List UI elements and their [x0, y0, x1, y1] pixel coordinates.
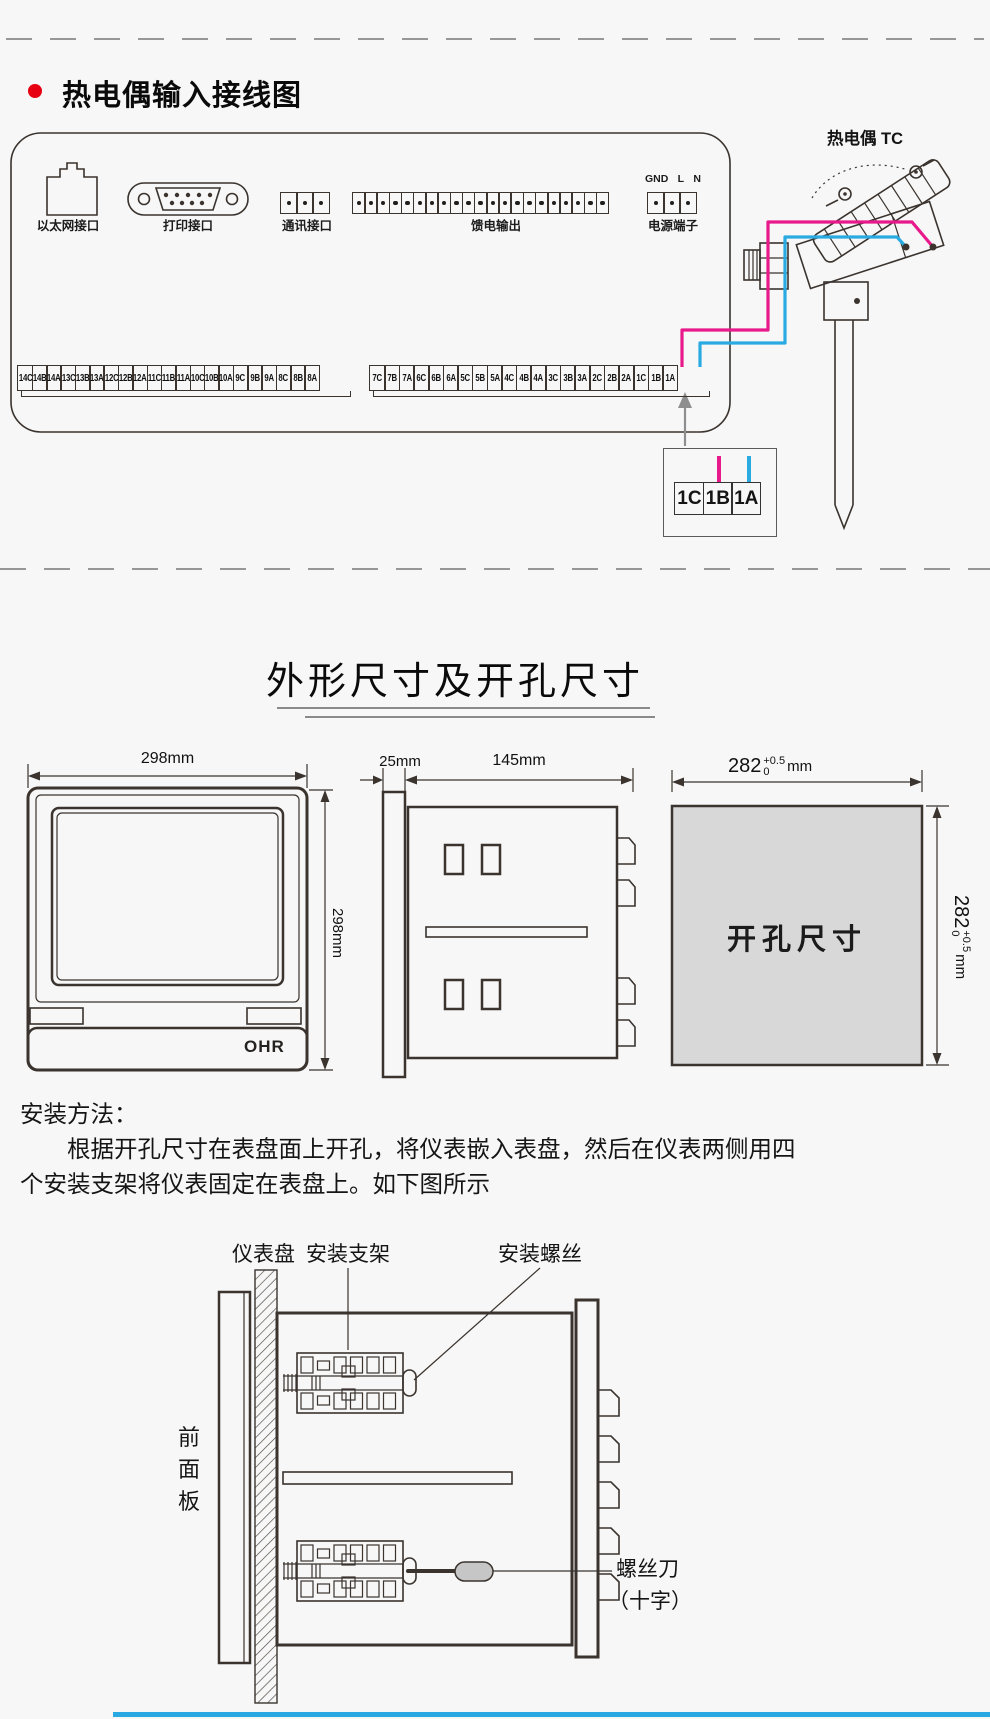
install-text-line2: 个安装支架将仪表固定在表盘上。如下图所示 — [20, 1168, 980, 1203]
detail-wire-blue — [747, 456, 751, 482]
terminal-dot-cell — [280, 192, 298, 214]
dim-tol-plus: +0.5 — [763, 756, 785, 767]
front-panel-plate — [219, 1292, 250, 1663]
screwdriver-icon — [408, 1562, 612, 1581]
body-slot — [283, 1472, 512, 1484]
label-mounting-screw: 安装螺丝 — [498, 1238, 582, 1268]
pin-n: N — [693, 173, 701, 185]
mounting-bracket-bottom — [283, 1541, 416, 1601]
cutout-label: 开孔尺寸 — [672, 916, 922, 958]
dim-value: 282 — [728, 755, 761, 778]
pin-l: L — [678, 173, 684, 185]
dim-tol-minus: 0 — [950, 930, 961, 952]
terminal-strip-left: 14C14B14A13C13B13A12C12B12A11C11B11A10C1… — [19, 365, 320, 391]
panel-wall-hatched — [255, 1270, 277, 1703]
front-height-dim: 298mm — [329, 908, 346, 958]
detail-wire-pink — [717, 456, 721, 482]
ethernet-port-label: 以太网接口 — [28, 215, 108, 234]
terminal-dot-cell — [663, 192, 681, 214]
dim-tol-plus: +0.5 — [961, 930, 972, 952]
terminal-cell: 1A — [662, 365, 678, 391]
label-mounting-bracket: 安装支架 — [306, 1238, 390, 1268]
wire-pink — [682, 222, 933, 367]
install-text-line1: 根据开孔尺寸在表盘面上开孔，将仪表嵌入表盘，然后在仪表两侧用四 — [20, 1133, 980, 1168]
terminal-dot-cell — [647, 192, 665, 214]
power-terminal-label: 电源端子 — [638, 215, 708, 234]
power-pin-labels: GND L N — [645, 173, 701, 185]
detail-cell: 1C — [674, 482, 704, 515]
terminal-dot-cell — [679, 192, 697, 214]
feed-terminal-row — [352, 192, 609, 214]
tc-terminal-dot — [930, 244, 937, 251]
tc-terminal-dot — [903, 244, 910, 251]
divider-top — [6, 38, 984, 40]
instrument-body — [277, 1313, 572, 1645]
front-panel-char: 面 — [172, 1454, 206, 1486]
installation-art — [0, 1230, 990, 1719]
mounting-bracket-top — [283, 1353, 416, 1413]
side-view — [360, 768, 635, 1077]
install-heading: 安装方法： — [20, 1098, 980, 1133]
front-panel-char: 前 — [172, 1422, 206, 1454]
dim-value: 282 — [949, 895, 972, 928]
label-instrument-panel: 仪表盘 — [232, 1238, 295, 1268]
comm-terminal-row — [280, 192, 330, 214]
feed-output-label: 馈电输出 — [461, 215, 531, 234]
printer-port-label: 打印接口 — [153, 215, 223, 234]
wire-blue — [700, 237, 906, 367]
dim-unit: mm — [787, 758, 812, 775]
thermocouple-label: 热电偶 TC — [795, 125, 935, 149]
cutout-width-dim: 282 +0.50 mm — [728, 755, 812, 778]
terminal-detail-box: 1C1B1A — [663, 448, 777, 537]
wiring-section-title: 热电偶输入接线图 — [62, 72, 302, 114]
label-screwdriver-line1: 螺丝刀 — [616, 1553, 679, 1583]
detail-cell: 1A — [731, 482, 761, 515]
terminal-dot-cell — [296, 192, 314, 214]
printer-port-icon — [128, 183, 248, 215]
terminal-dot-cell — [596, 192, 610, 214]
wiring-diagram-art — [0, 120, 990, 580]
cutout-height-dim: 282 +0.50 mm — [949, 895, 972, 979]
front-view — [28, 764, 333, 1070]
page: 热电偶输入接线图 — [0, 0, 990, 1719]
front-width-dim: 298mm — [110, 750, 225, 768]
dim-unit: mm — [952, 954, 969, 979]
side-depth-dim: 145mm — [461, 752, 577, 770]
terminal-strip-base — [373, 391, 710, 397]
brand-logo: OHR — [244, 1037, 285, 1057]
rear-terminal-bar — [576, 1300, 598, 1657]
terminal-dot-cell — [312, 192, 330, 214]
section-bullet-icon — [28, 84, 42, 98]
side-bezel-dim: 25mm — [372, 753, 428, 770]
terminal-strip-right: 7C7B7A6C6B6A5C5B5A4C4B4A3C3B3A2C2B2A1C1B… — [371, 365, 678, 391]
pin-gnd: GND — [645, 173, 668, 185]
label-screwdriver-line2: （十字） — [608, 1585, 692, 1615]
page-bottom-rule — [113, 1712, 990, 1717]
power-terminal-row — [647, 192, 697, 214]
dimensions-art — [0, 640, 990, 1110]
dim-tol-minus: 0 — [763, 767, 785, 778]
comm-port-label: 通讯接口 — [272, 215, 342, 234]
detail-cells: 1C1B1A — [676, 482, 761, 515]
front-panel-char: 板 — [172, 1486, 206, 1518]
detail-cell: 1B — [703, 482, 733, 515]
ethernet-port-icon — [47, 163, 97, 215]
screw-leader-line — [414, 1268, 540, 1380]
terminal-strip-base — [21, 391, 351, 397]
label-front-panel: 前 面 板 — [172, 1422, 206, 1518]
terminal-cell: 8A — [304, 365, 320, 391]
